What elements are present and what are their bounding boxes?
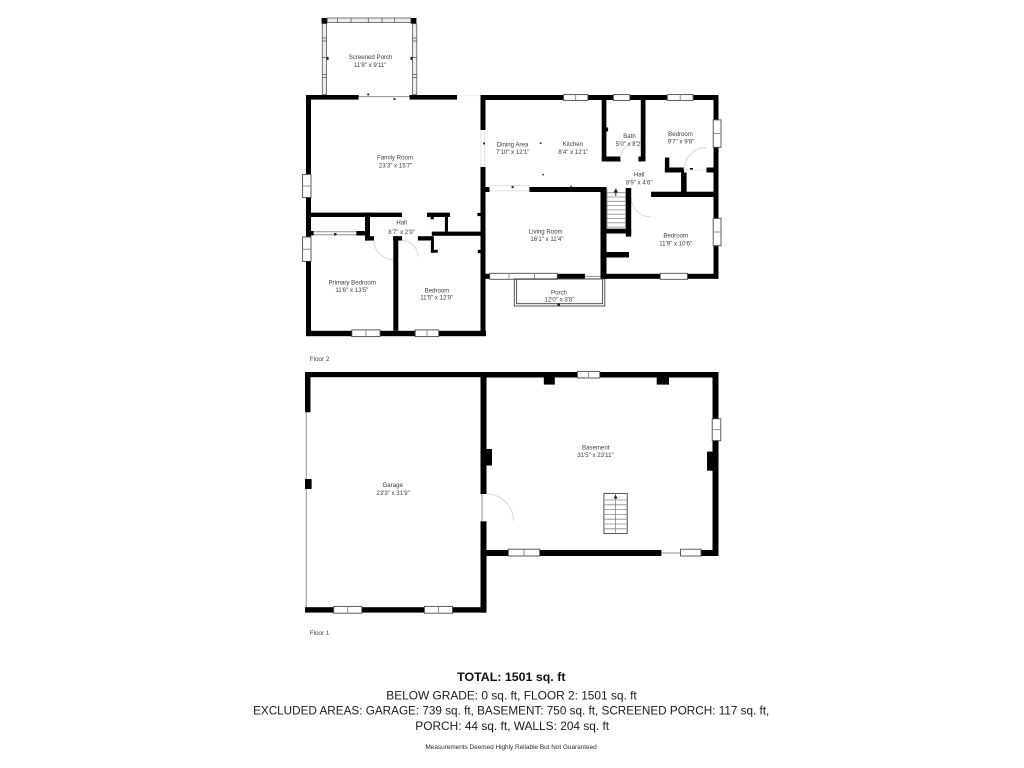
svg-text:Bedroom: Bedroom bbox=[425, 287, 450, 294]
svg-text:8'9" x 4'6": 8'9" x 4'6" bbox=[626, 180, 653, 187]
svg-text:Primary Bedroom: Primary Bedroom bbox=[328, 279, 375, 286]
svg-text:11'6" x 13'5": 11'6" x 13'5" bbox=[335, 287, 368, 294]
svg-text:Basement: Basement bbox=[582, 445, 610, 452]
svg-text:5'0" x 8'2": 5'0" x 8'2" bbox=[616, 141, 643, 148]
svg-text:31'5" x 23'11": 31'5" x 23'11" bbox=[577, 452, 613, 459]
svg-text:7'10" x 12'1": 7'10" x 12'1" bbox=[496, 149, 529, 156]
svg-text:EXCLUDED AREAS: GARAGE: 739 sq: EXCLUDED AREAS: GARAGE: 739 sq. ft, BASE… bbox=[253, 704, 769, 717]
svg-text:12'0" x 3'8": 12'0" x 3'8" bbox=[544, 297, 574, 304]
svg-text:Bedroom: Bedroom bbox=[668, 131, 693, 138]
svg-text:Floor 2: Floor 2 bbox=[310, 356, 330, 363]
svg-text:8'4" x 12'1": 8'4" x 12'1" bbox=[558, 149, 588, 156]
svg-text:Floor 1: Floor 1 bbox=[310, 630, 330, 637]
svg-text:TOTAL: 1501 sq. ft: TOTAL: 1501 sq. ft bbox=[457, 670, 565, 684]
svg-text:11'8" x 9'11": 11'8" x 9'11" bbox=[354, 62, 387, 69]
svg-text:Kitchen: Kitchen bbox=[563, 141, 583, 148]
svg-text:23'3" x 15'7": 23'3" x 15'7" bbox=[379, 162, 412, 169]
svg-text:Hall: Hall bbox=[396, 220, 407, 227]
svg-text:Hall: Hall bbox=[634, 172, 645, 179]
svg-text:8'7" x 2'9": 8'7" x 2'9" bbox=[388, 229, 415, 236]
svg-text:Bath: Bath bbox=[623, 133, 636, 140]
svg-text:11'9" x 10'6": 11'9" x 10'6" bbox=[659, 241, 692, 248]
svg-text:23'3" x 31'9": 23'3" x 31'9" bbox=[376, 490, 409, 497]
svg-text:16'1" x 11'4": 16'1" x 11'4" bbox=[530, 236, 563, 243]
svg-text:Garage: Garage bbox=[383, 482, 404, 489]
svg-text:Family Room: Family Room bbox=[377, 154, 413, 161]
svg-text:Porch: Porch bbox=[551, 289, 567, 296]
svg-text:PORCH: 44 sq. ft, WALLS: 204 s: PORCH: 44 sq. ft, WALLS: 204 sq. ft bbox=[415, 719, 610, 733]
svg-text:Living Room: Living Room bbox=[529, 229, 563, 236]
svg-text:Measurements Deemed Highly Rel: Measurements Deemed Highly Reliable But … bbox=[425, 744, 597, 751]
svg-text:Screened Porch: Screened Porch bbox=[349, 54, 393, 61]
svg-text:9'7" x 9'8": 9'7" x 9'8" bbox=[668, 138, 695, 145]
svg-text:11'5" x 12'9": 11'5" x 12'9" bbox=[420, 295, 453, 302]
svg-text:Bedroom: Bedroom bbox=[663, 233, 688, 240]
svg-text:BELOW GRADE: 0 sq. ft, FLOOR 2: BELOW GRADE: 0 sq. ft, FLOOR 2: 1501 sq.… bbox=[386, 688, 637, 702]
svg-text:Dining Area: Dining Area bbox=[497, 141, 529, 148]
